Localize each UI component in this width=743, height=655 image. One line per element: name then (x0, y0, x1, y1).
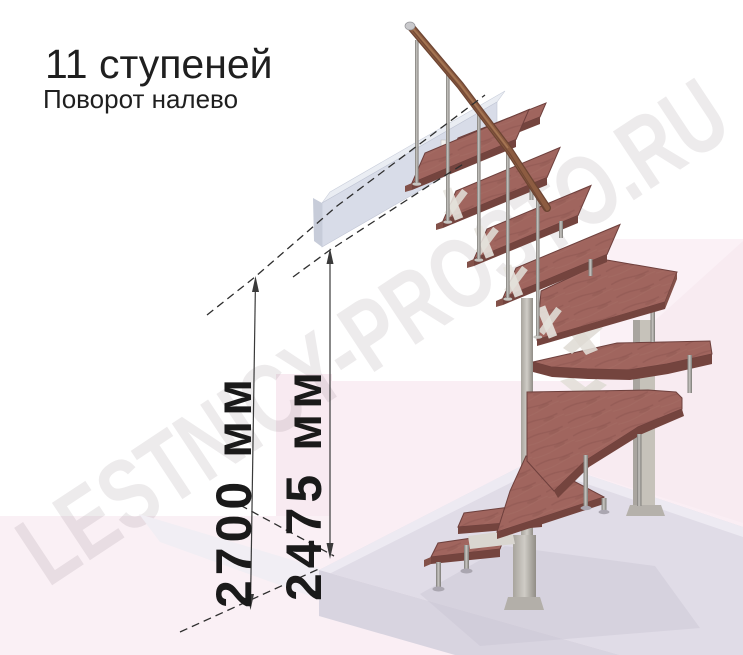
svg-text:2475 мм: 2475 мм (276, 367, 332, 601)
svg-text:2700 мм: 2700 мм (206, 374, 262, 608)
svg-text:Поворот налево: Поворот налево (43, 84, 238, 114)
svg-text:11 ступеней: 11 ступеней (45, 41, 273, 87)
